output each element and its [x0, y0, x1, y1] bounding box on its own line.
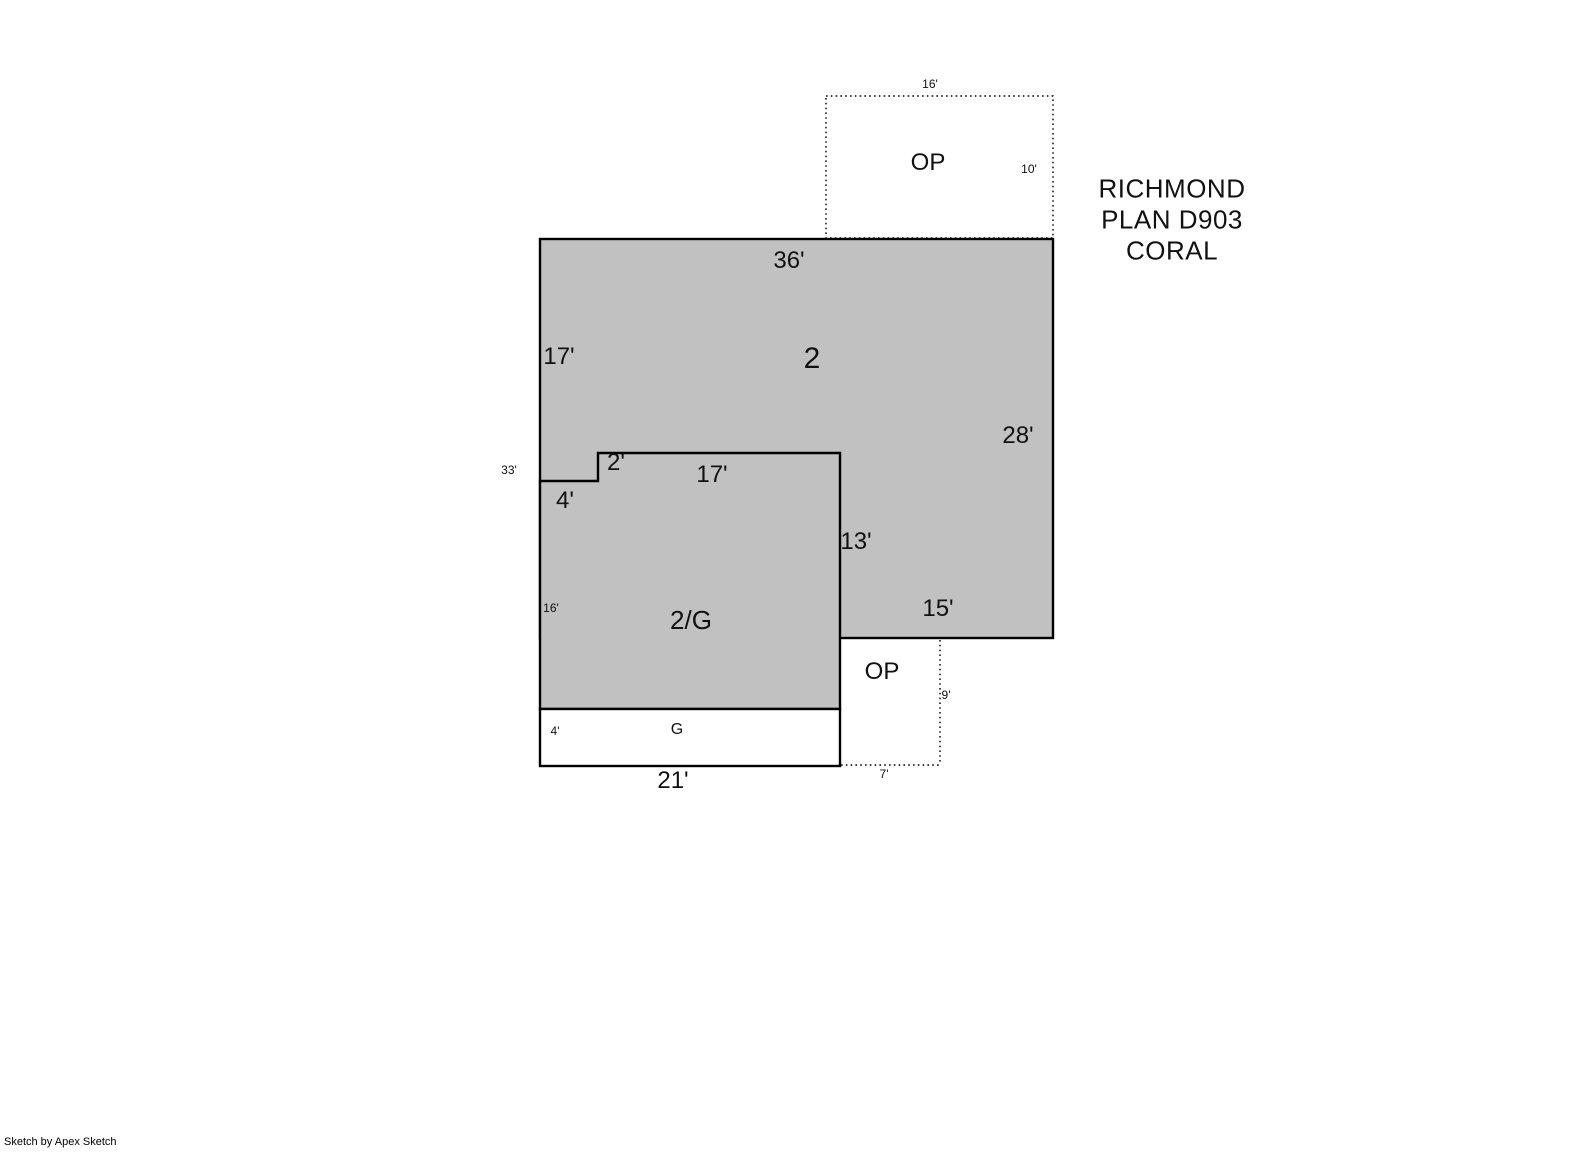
- dim-garage-left-height: 4': [551, 725, 560, 737]
- garage-shape: [540, 709, 840, 766]
- area-2g-label: 2/G: [670, 607, 712, 633]
- sketch-credit: Sketch by Apex Sketch: [4, 1136, 117, 1148]
- dim-lower-left-height: 16': [543, 602, 559, 614]
- area-2g-shape: [540, 453, 840, 709]
- plan-title-line2: PLAN D903: [1099, 205, 1246, 236]
- dim-porch-bottom-width: 7': [880, 768, 889, 780]
- plan-title: RICHMOND PLAN D903 CORAL: [1099, 174, 1246, 267]
- plan-title-line1: RICHMOND: [1099, 174, 1246, 205]
- dim-porch-top-width: 16': [922, 78, 938, 90]
- dim-lower-right-height: 13': [840, 530, 871, 554]
- dim-step-height: 2': [607, 451, 625, 475]
- plan-title-line3: CORAL: [1099, 236, 1246, 267]
- area-2-label: 2: [804, 344, 821, 374]
- floorplan-canvas: [0, 0, 1585, 1163]
- dim-main-left-height: 17': [543, 345, 574, 369]
- dim-main-bottom-right-width: 15': [922, 597, 953, 621]
- garage-label: G: [671, 722, 683, 738]
- dim-porch-bottom-depth: 9': [942, 689, 951, 701]
- porch-top-label: OP: [911, 151, 946, 175]
- dim-main-top-width: 36': [773, 249, 804, 273]
- porch-bottom-label: OP: [865, 660, 900, 684]
- dim-lower-top-width: 17': [696, 463, 727, 487]
- dim-step-width: 4': [556, 489, 574, 513]
- floorplan-page: 16' OP 10' RICHMOND PLAN D903 CORAL 36' …: [0, 0, 1585, 1163]
- dim-bottom-width: 21': [657, 769, 688, 793]
- dim-porch-top-depth: 10': [1021, 163, 1037, 175]
- dim-main-right-height: 28': [1002, 424, 1033, 448]
- dim-left-total-height: 33': [501, 464, 517, 476]
